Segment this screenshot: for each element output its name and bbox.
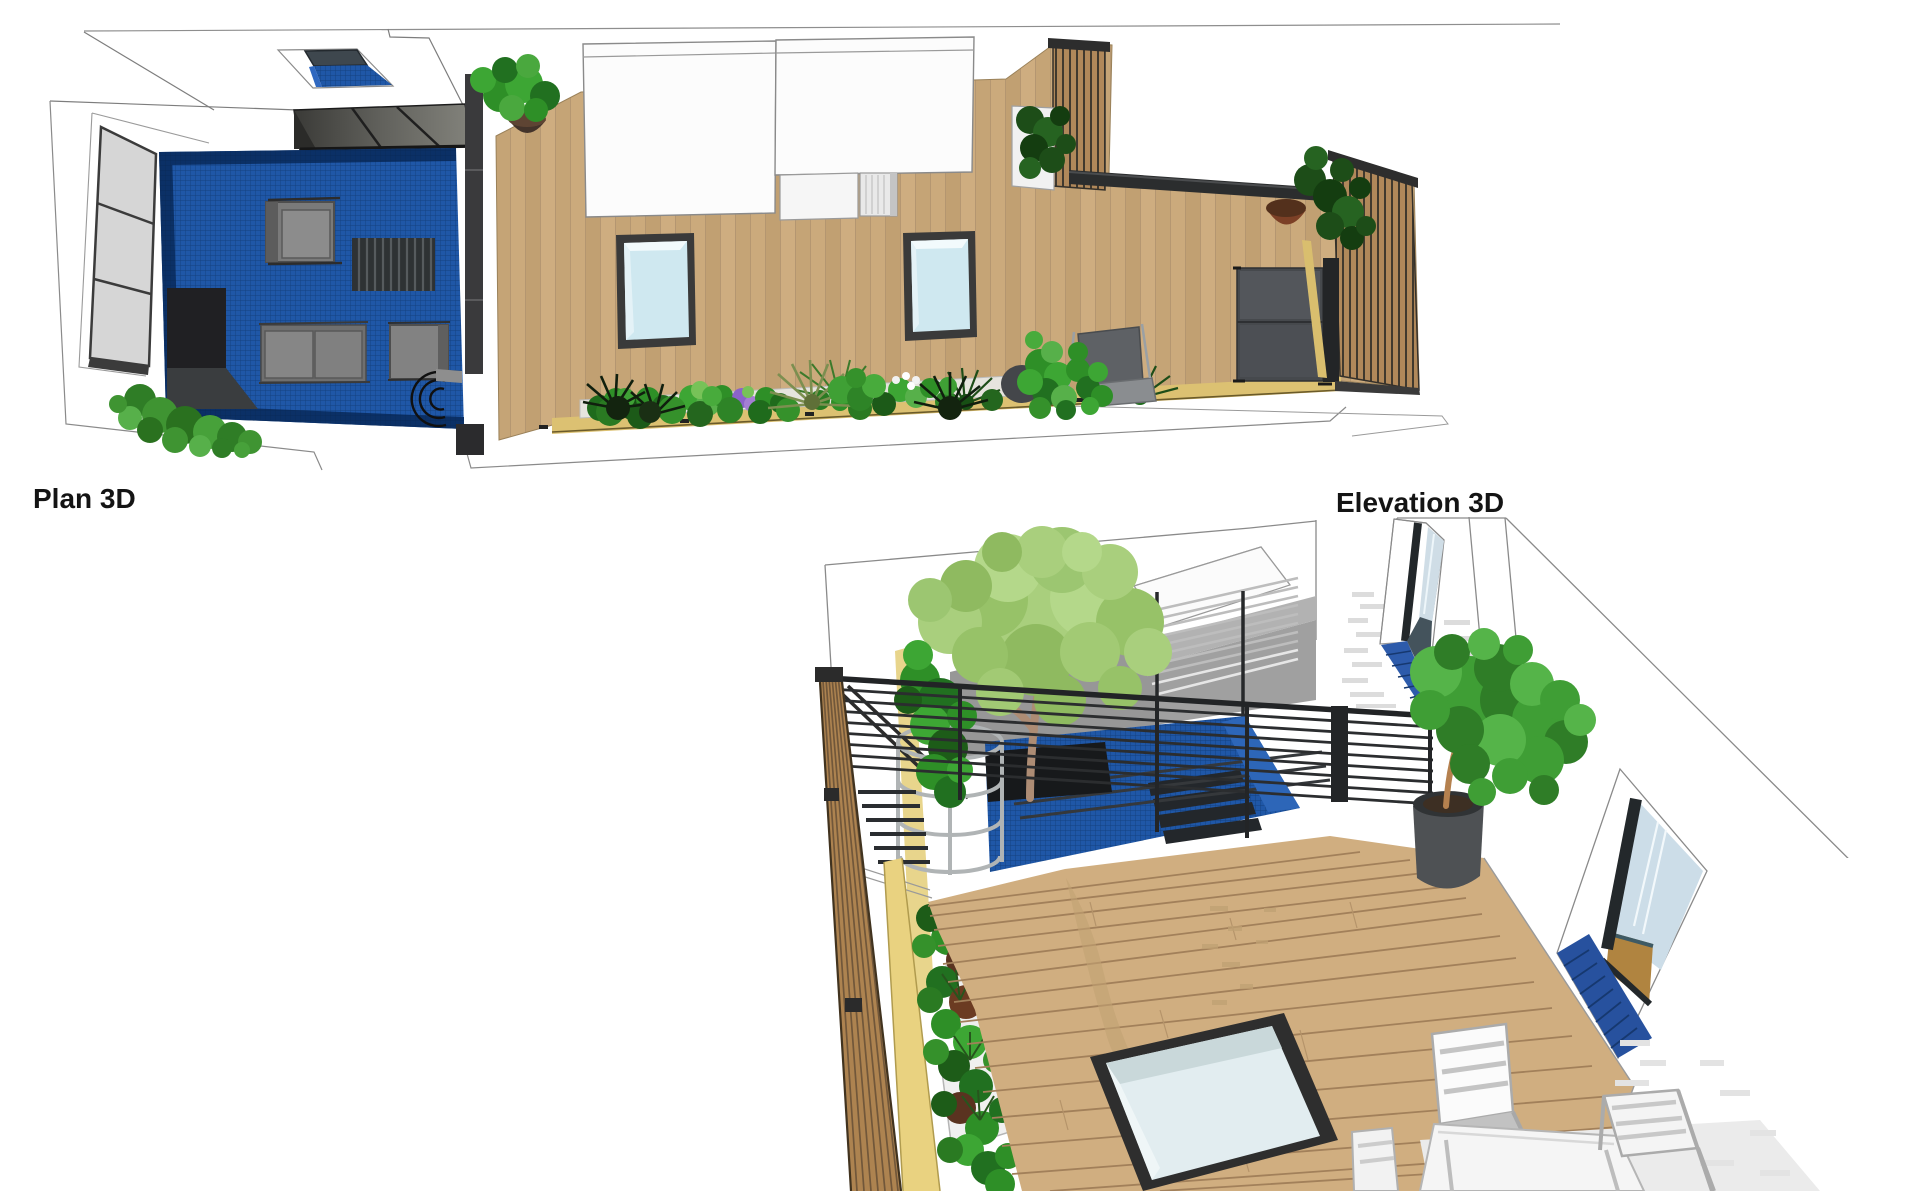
svg-text:Plan 3D: Plan 3D [33, 483, 136, 514]
svg-text:Elevation 3D: Elevation 3D [1336, 487, 1504, 518]
